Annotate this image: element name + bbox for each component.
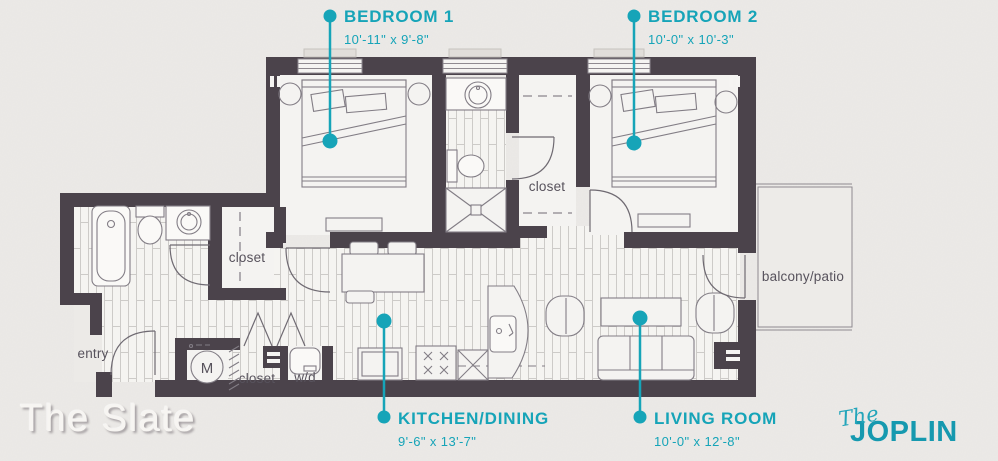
bedroom2-dims: 10'-0" x 10'-3" — [648, 32, 734, 47]
callout-dot — [377, 314, 392, 329]
sofa — [598, 336, 694, 380]
floor-plan-svg: closet closet closet entry balcony/patio… — [0, 0, 998, 461]
living-title: LIVING ROOM — [654, 409, 777, 428]
balcony-label: balcony/patio — [762, 269, 844, 284]
dresser — [326, 218, 382, 231]
mechanical-label: M — [201, 360, 214, 377]
floorplan-name: The Slate — [20, 398, 196, 441]
property-logo: The JOPLIN — [836, 396, 986, 449]
bedroom1-title: BEDROOM 1 — [344, 7, 454, 26]
dining-chair — [346, 291, 374, 303]
kitchen-title: KITCHEN/DINING — [398, 409, 549, 428]
callout-dot — [627, 136, 642, 151]
dining-chair — [388, 242, 416, 255]
living-dims: 10'-0" x 12'-8" — [654, 434, 740, 449]
bedroom1-dims: 10'-11" x 9'-8" — [344, 32, 429, 47]
toilet — [447, 150, 457, 182]
callout-dot — [633, 311, 648, 326]
dresser — [638, 214, 690, 227]
callout-bullet — [628, 10, 641, 23]
hall-closet-label: closet — [229, 250, 266, 265]
floorplan-page: closet closet closet entry balcony/patio… — [0, 0, 998, 461]
callout-bullet — [634, 411, 647, 424]
armchair — [546, 296, 584, 336]
stove — [416, 346, 456, 380]
dining-chair — [350, 242, 378, 255]
window — [588, 59, 650, 73]
kitchen-dims: 9'-6" x 13'-7" — [398, 434, 476, 449]
walkin-closet-floor — [519, 75, 576, 226]
vanity — [446, 78, 506, 110]
refrigerator — [358, 348, 402, 380]
callout-dot — [323, 134, 338, 149]
windows — [298, 49, 650, 73]
dining-table — [342, 254, 424, 292]
media-niche — [714, 342, 756, 369]
entry-label: entry — [77, 346, 108, 361]
washer-dryer-label: w/d — [293, 370, 316, 385]
callout-bullet — [324, 10, 337, 23]
armchair — [696, 293, 734, 333]
toilet — [136, 206, 164, 217]
callout-bullet — [378, 411, 391, 424]
balcony — [756, 184, 852, 330]
vanity — [166, 206, 210, 240]
laundry-closet-label: closet — [239, 371, 276, 386]
walkin-closet-label: closet — [529, 179, 566, 194]
bedroom2-title: BEDROOM 2 — [648, 7, 758, 26]
window — [443, 59, 507, 73]
